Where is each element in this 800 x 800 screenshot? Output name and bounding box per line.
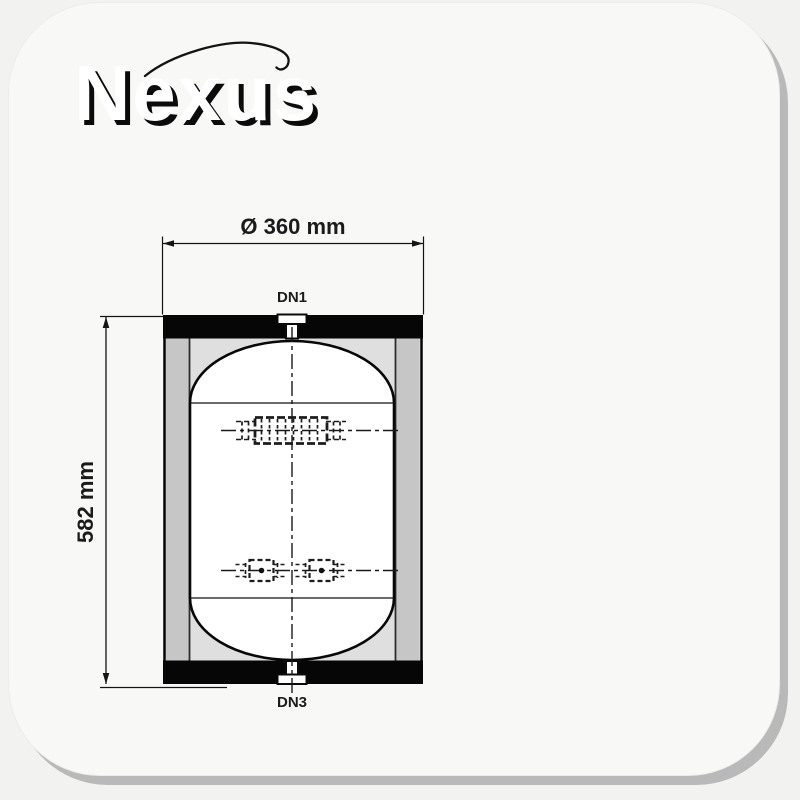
dn1-nozzle-label: DN1 <box>252 289 332 306</box>
dn3-nozzle-label: DN3 <box>252 694 332 711</box>
diameter-dimension-label: Ø 360 mm <box>213 214 373 240</box>
brand-logo: Nexus <box>74 54 318 132</box>
height-dimension-label: 582 mm <box>73 412 95 592</box>
page: Nexus Ø 360 mm 582 mm DN1 DN3 <box>0 0 800 800</box>
